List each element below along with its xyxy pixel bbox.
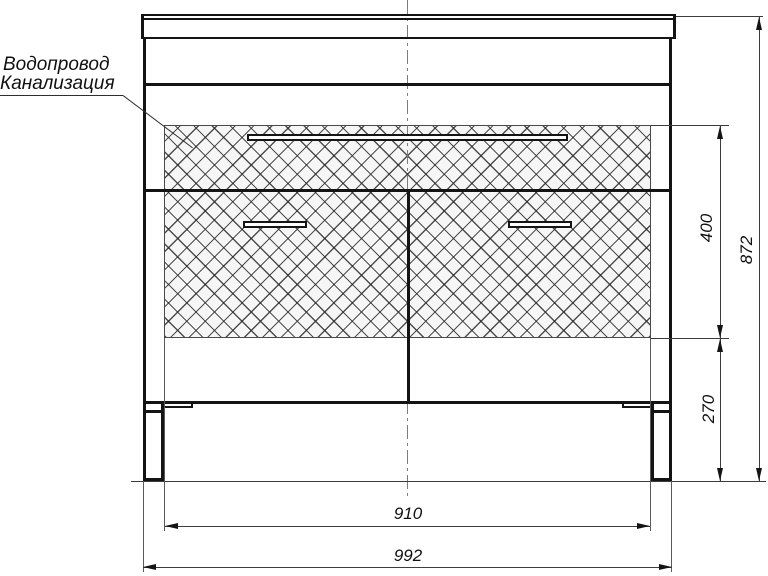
ext-line-countertop-top bbox=[676, 16, 763, 17]
vanity-front-view-drawing: 400 872 270 910 992 Водопровод Канализац… bbox=[0, 0, 768, 576]
dim-line-910 bbox=[165, 526, 650, 527]
dim-line-992 bbox=[143, 567, 672, 568]
callout-sewerage-label: Канализация bbox=[0, 74, 115, 93]
door-gap-line bbox=[407, 190, 410, 404]
arrow-872-top bbox=[756, 17, 762, 30]
callout-leader-horizontal bbox=[0, 95, 123, 96]
right-leg-top-line bbox=[651, 410, 672, 413]
callout-water-supply-label: Водопровод bbox=[3, 55, 109, 74]
ext-line-outer-left bbox=[143, 481, 144, 572]
arrow-992-left bbox=[143, 564, 156, 570]
right-bottom-bracket bbox=[622, 403, 651, 408]
dim-label-overall-height: 872 bbox=[737, 210, 757, 290]
right-leg bbox=[651, 404, 672, 481]
left-door-handle bbox=[243, 221, 307, 228]
ext-line-inner-left bbox=[164, 338, 165, 531]
left-leg-top-line bbox=[143, 410, 164, 413]
cabinet-left-side bbox=[143, 39, 146, 404]
ext-line-outer-right bbox=[671, 481, 672, 572]
arrow-872-bottom bbox=[756, 468, 762, 481]
right-door-handle bbox=[508, 221, 572, 228]
cabinet-right-side bbox=[669, 39, 672, 404]
arrow-910-right bbox=[637, 523, 650, 529]
arrow-270-top bbox=[717, 339, 723, 352]
arrow-270-bottom bbox=[717, 468, 723, 481]
dim-label-service-zone-height: 400 bbox=[697, 188, 717, 268]
arrow-992-right bbox=[659, 564, 672, 570]
countertop-inner-edge-line bbox=[144, 18, 673, 20]
left-leg bbox=[143, 404, 164, 481]
callout-leader-diagonal bbox=[123, 95, 193, 148]
dim-label-inner-width: 910 bbox=[368, 504, 448, 524]
drawer-handle bbox=[247, 134, 568, 141]
arrow-910-left bbox=[165, 523, 178, 529]
left-bottom-bracket bbox=[164, 403, 193, 408]
arrow-400-top bbox=[717, 126, 723, 139]
ext-line-inner-right bbox=[650, 338, 651, 531]
arrow-400-bottom bbox=[717, 325, 723, 338]
dim-line-872 bbox=[759, 17, 760, 481]
apron-drawer-division-line bbox=[144, 83, 671, 86]
dim-label-overall-width: 992 bbox=[368, 546, 448, 566]
dim-label-plinth-zone-height: 270 bbox=[699, 369, 719, 449]
dim-line-400-270 bbox=[720, 126, 721, 481]
